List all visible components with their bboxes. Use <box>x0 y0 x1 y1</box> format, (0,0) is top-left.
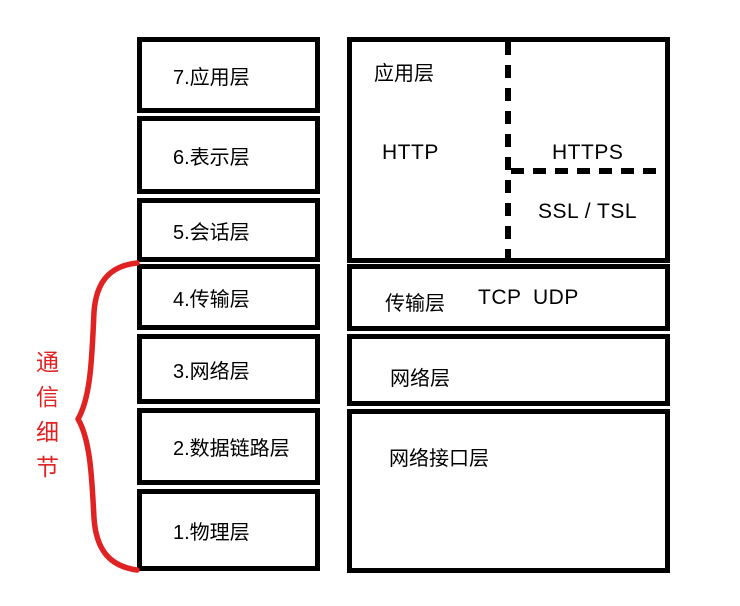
tcp-label: TCP <box>478 286 522 310</box>
dashed-horizontal-divider <box>511 168 665 174</box>
tcpip-network-layer-box: 网络层 <box>347 334 670 406</box>
udp-label: UDP <box>533 286 579 310</box>
osi-layer-2-datalink: 2.数据链路层 <box>137 408 320 485</box>
osi-layer-5-session: 5.会话层 <box>137 198 320 262</box>
osi-layer-7-application: 7.应用层 <box>137 37 320 113</box>
osi-layer-3-network: 3.网络层 <box>137 334 320 404</box>
osi-layer-6-label: 6.表示层 <box>142 141 250 170</box>
dashed-vertical-divider <box>505 42 511 258</box>
http-label: HTTP <box>382 141 439 165</box>
osi-layer-1-physical: 1.物理层 <box>137 489 320 571</box>
osi-layer-5-label: 5.会话层 <box>142 216 250 245</box>
ssl-tsl-label: SSL / TSL <box>538 200 637 224</box>
osi-layer-1-label: 1.物理层 <box>142 516 250 545</box>
osi-layer-6-presentation: 6.表示层 <box>137 116 320 194</box>
tcpip-transport-label: 传输层 <box>385 287 445 316</box>
tcpip-transport-layer-box: 传输层 TCP UDP <box>347 264 670 331</box>
diagram-canvas: 7.应用层 6.表示层 5.会话层 4.传输层 3.网络层 2.数据链路层 1.… <box>0 0 740 606</box>
annotation-char-2: 信 <box>36 386 59 409</box>
https-label: HTTPS <box>552 141 623 165</box>
tcpip-interface-layer-box: 网络接口层 <box>347 409 670 573</box>
annotation-communication-details: 通 信 细 节 <box>36 351 59 479</box>
annotation-char-3: 细 <box>36 421 59 444</box>
annotation-char-4: 节 <box>36 456 59 479</box>
annotation-char-1: 通 <box>36 351 59 374</box>
tcpip-network-label: 网络层 <box>390 362 450 391</box>
osi-layer-4-transport: 4.传输层 <box>137 264 320 330</box>
osi-layer-2-label: 2.数据链路层 <box>142 432 290 461</box>
osi-layer-4-label: 4.传输层 <box>142 283 250 312</box>
tcpip-interface-label: 网络接口层 <box>389 442 489 471</box>
osi-layer-3-label: 3.网络层 <box>142 355 250 384</box>
osi-layer-7-label: 7.应用层 <box>142 61 250 90</box>
tcpip-application-layer-box: 应用层 HTTP HTTPS SSL / TSL <box>347 37 670 263</box>
tcpip-application-label: 应用层 <box>374 57 434 86</box>
communication-details-brace <box>55 250 150 580</box>
